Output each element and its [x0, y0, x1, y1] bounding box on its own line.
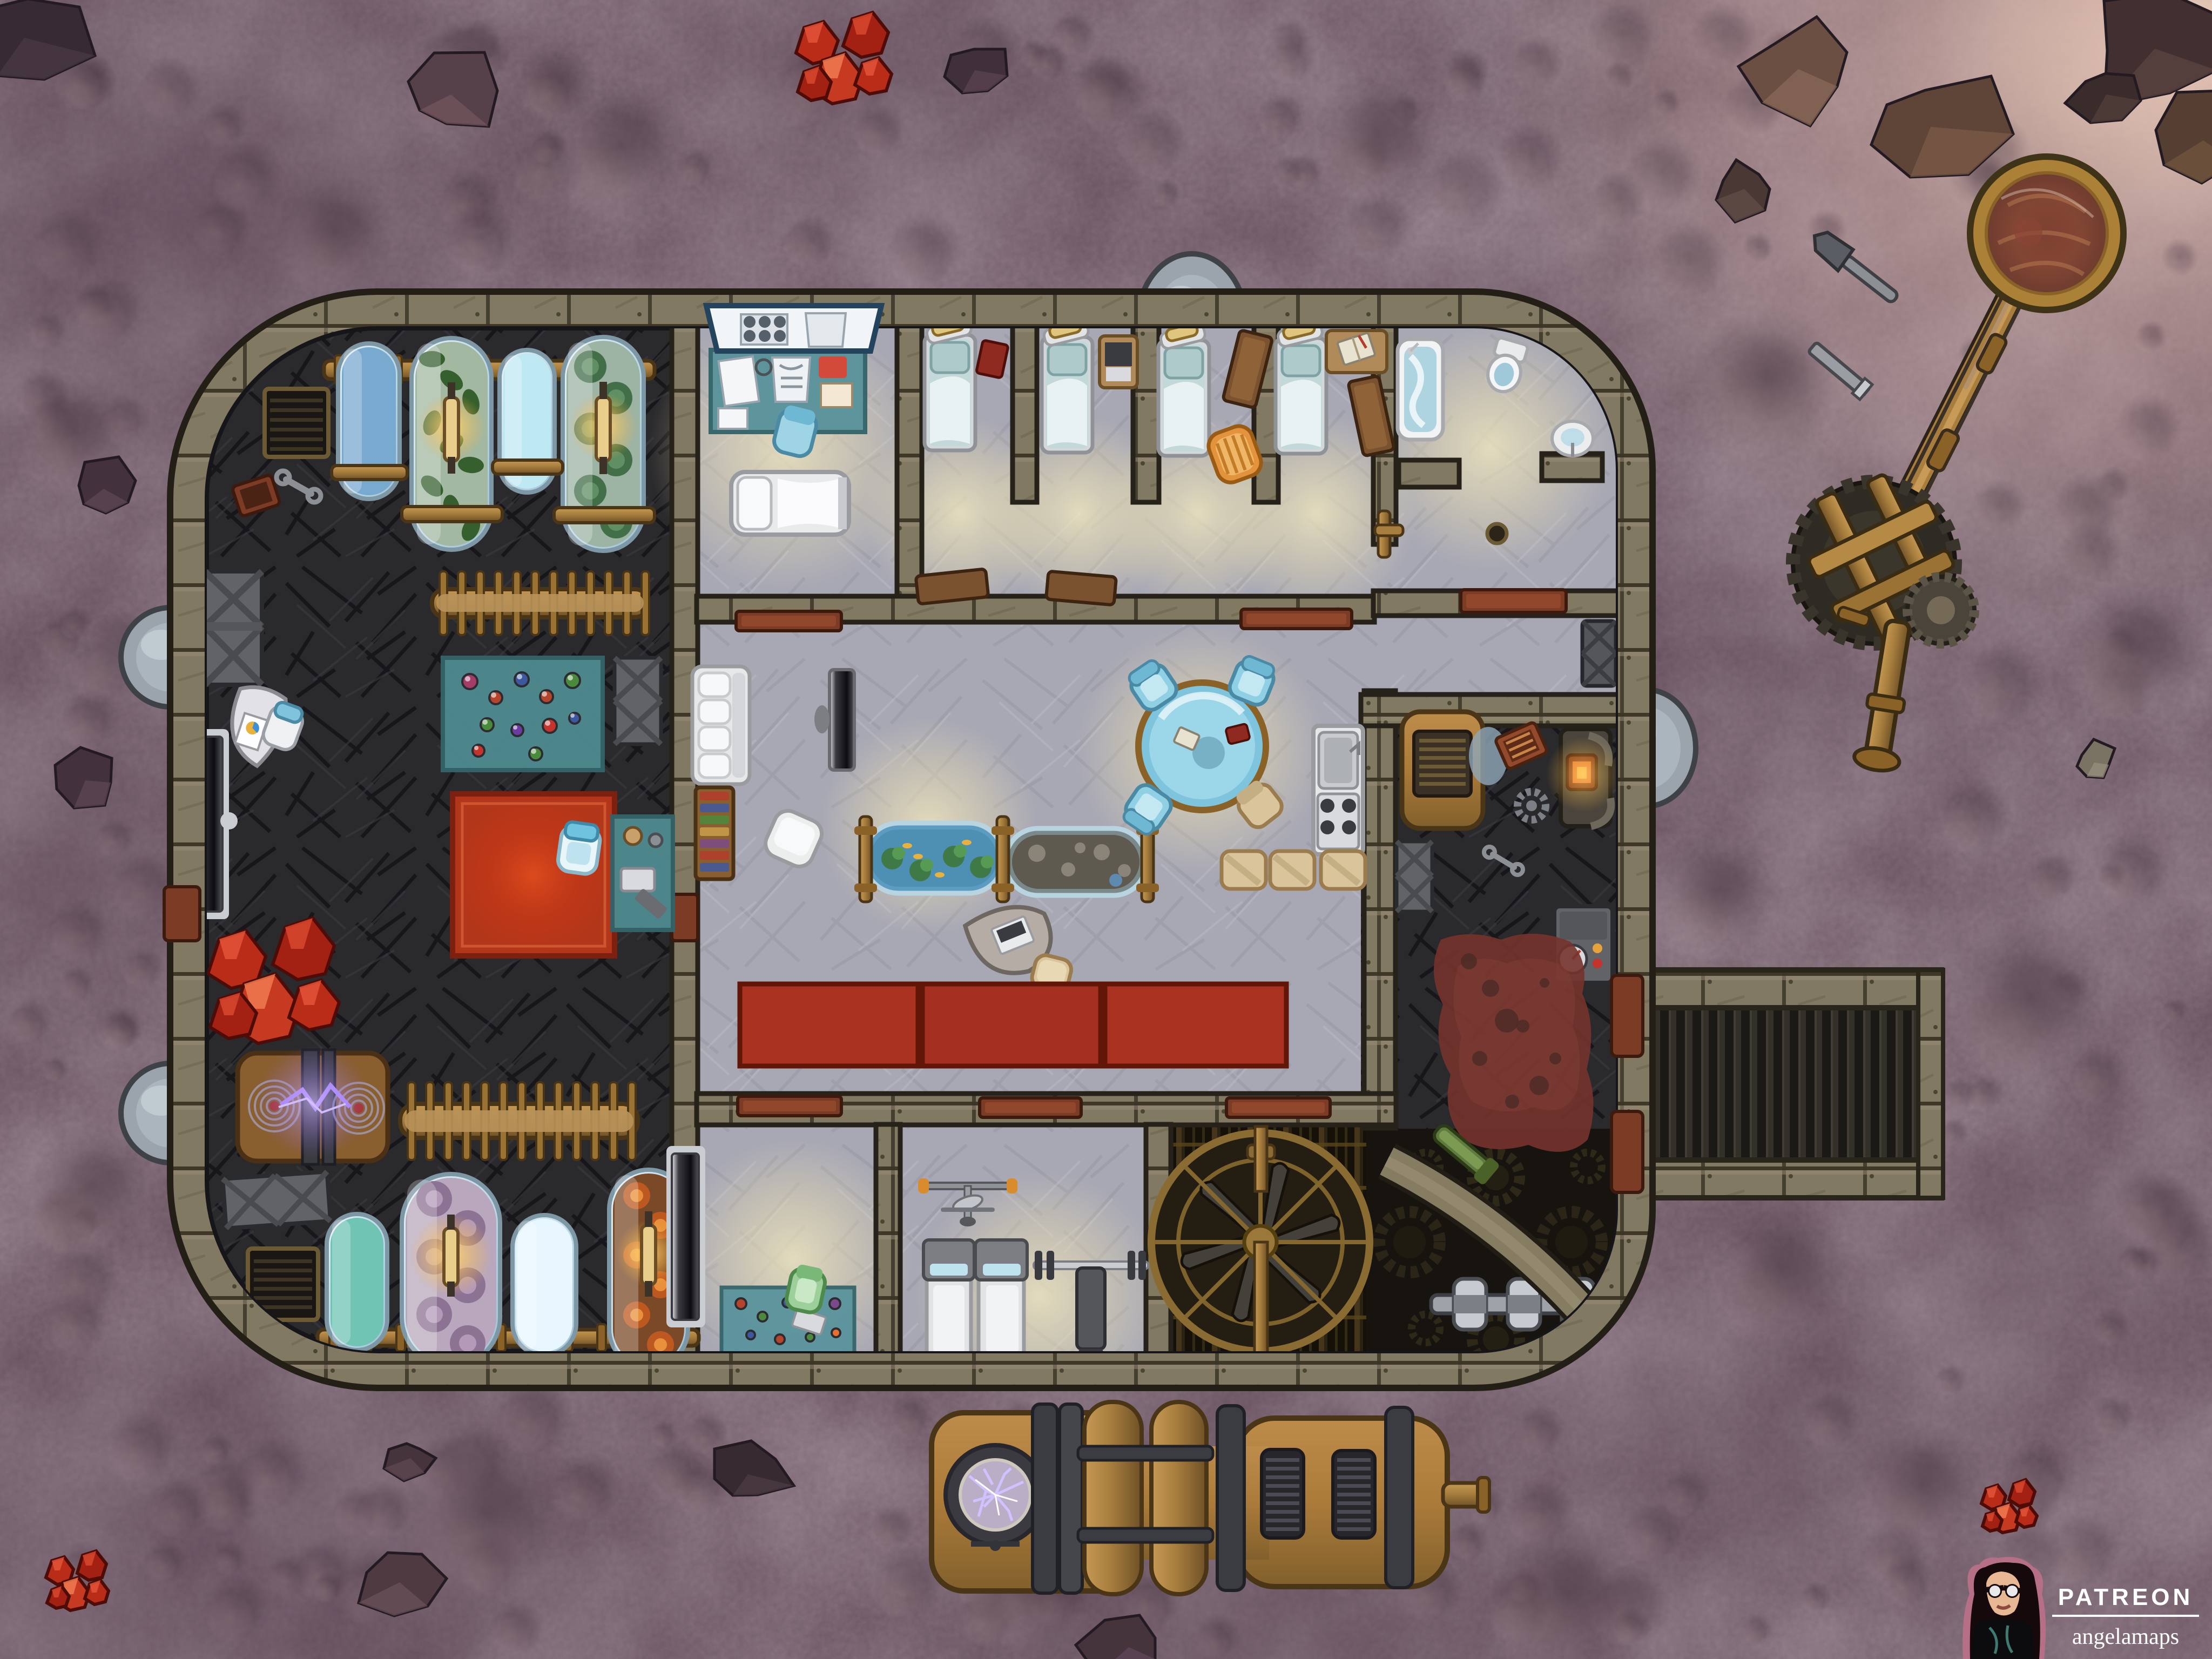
svg-text:PATREON: PATREON [2058, 1584, 2194, 1610]
svg-text:angelamaps: angelamaps [2072, 1624, 2179, 1649]
